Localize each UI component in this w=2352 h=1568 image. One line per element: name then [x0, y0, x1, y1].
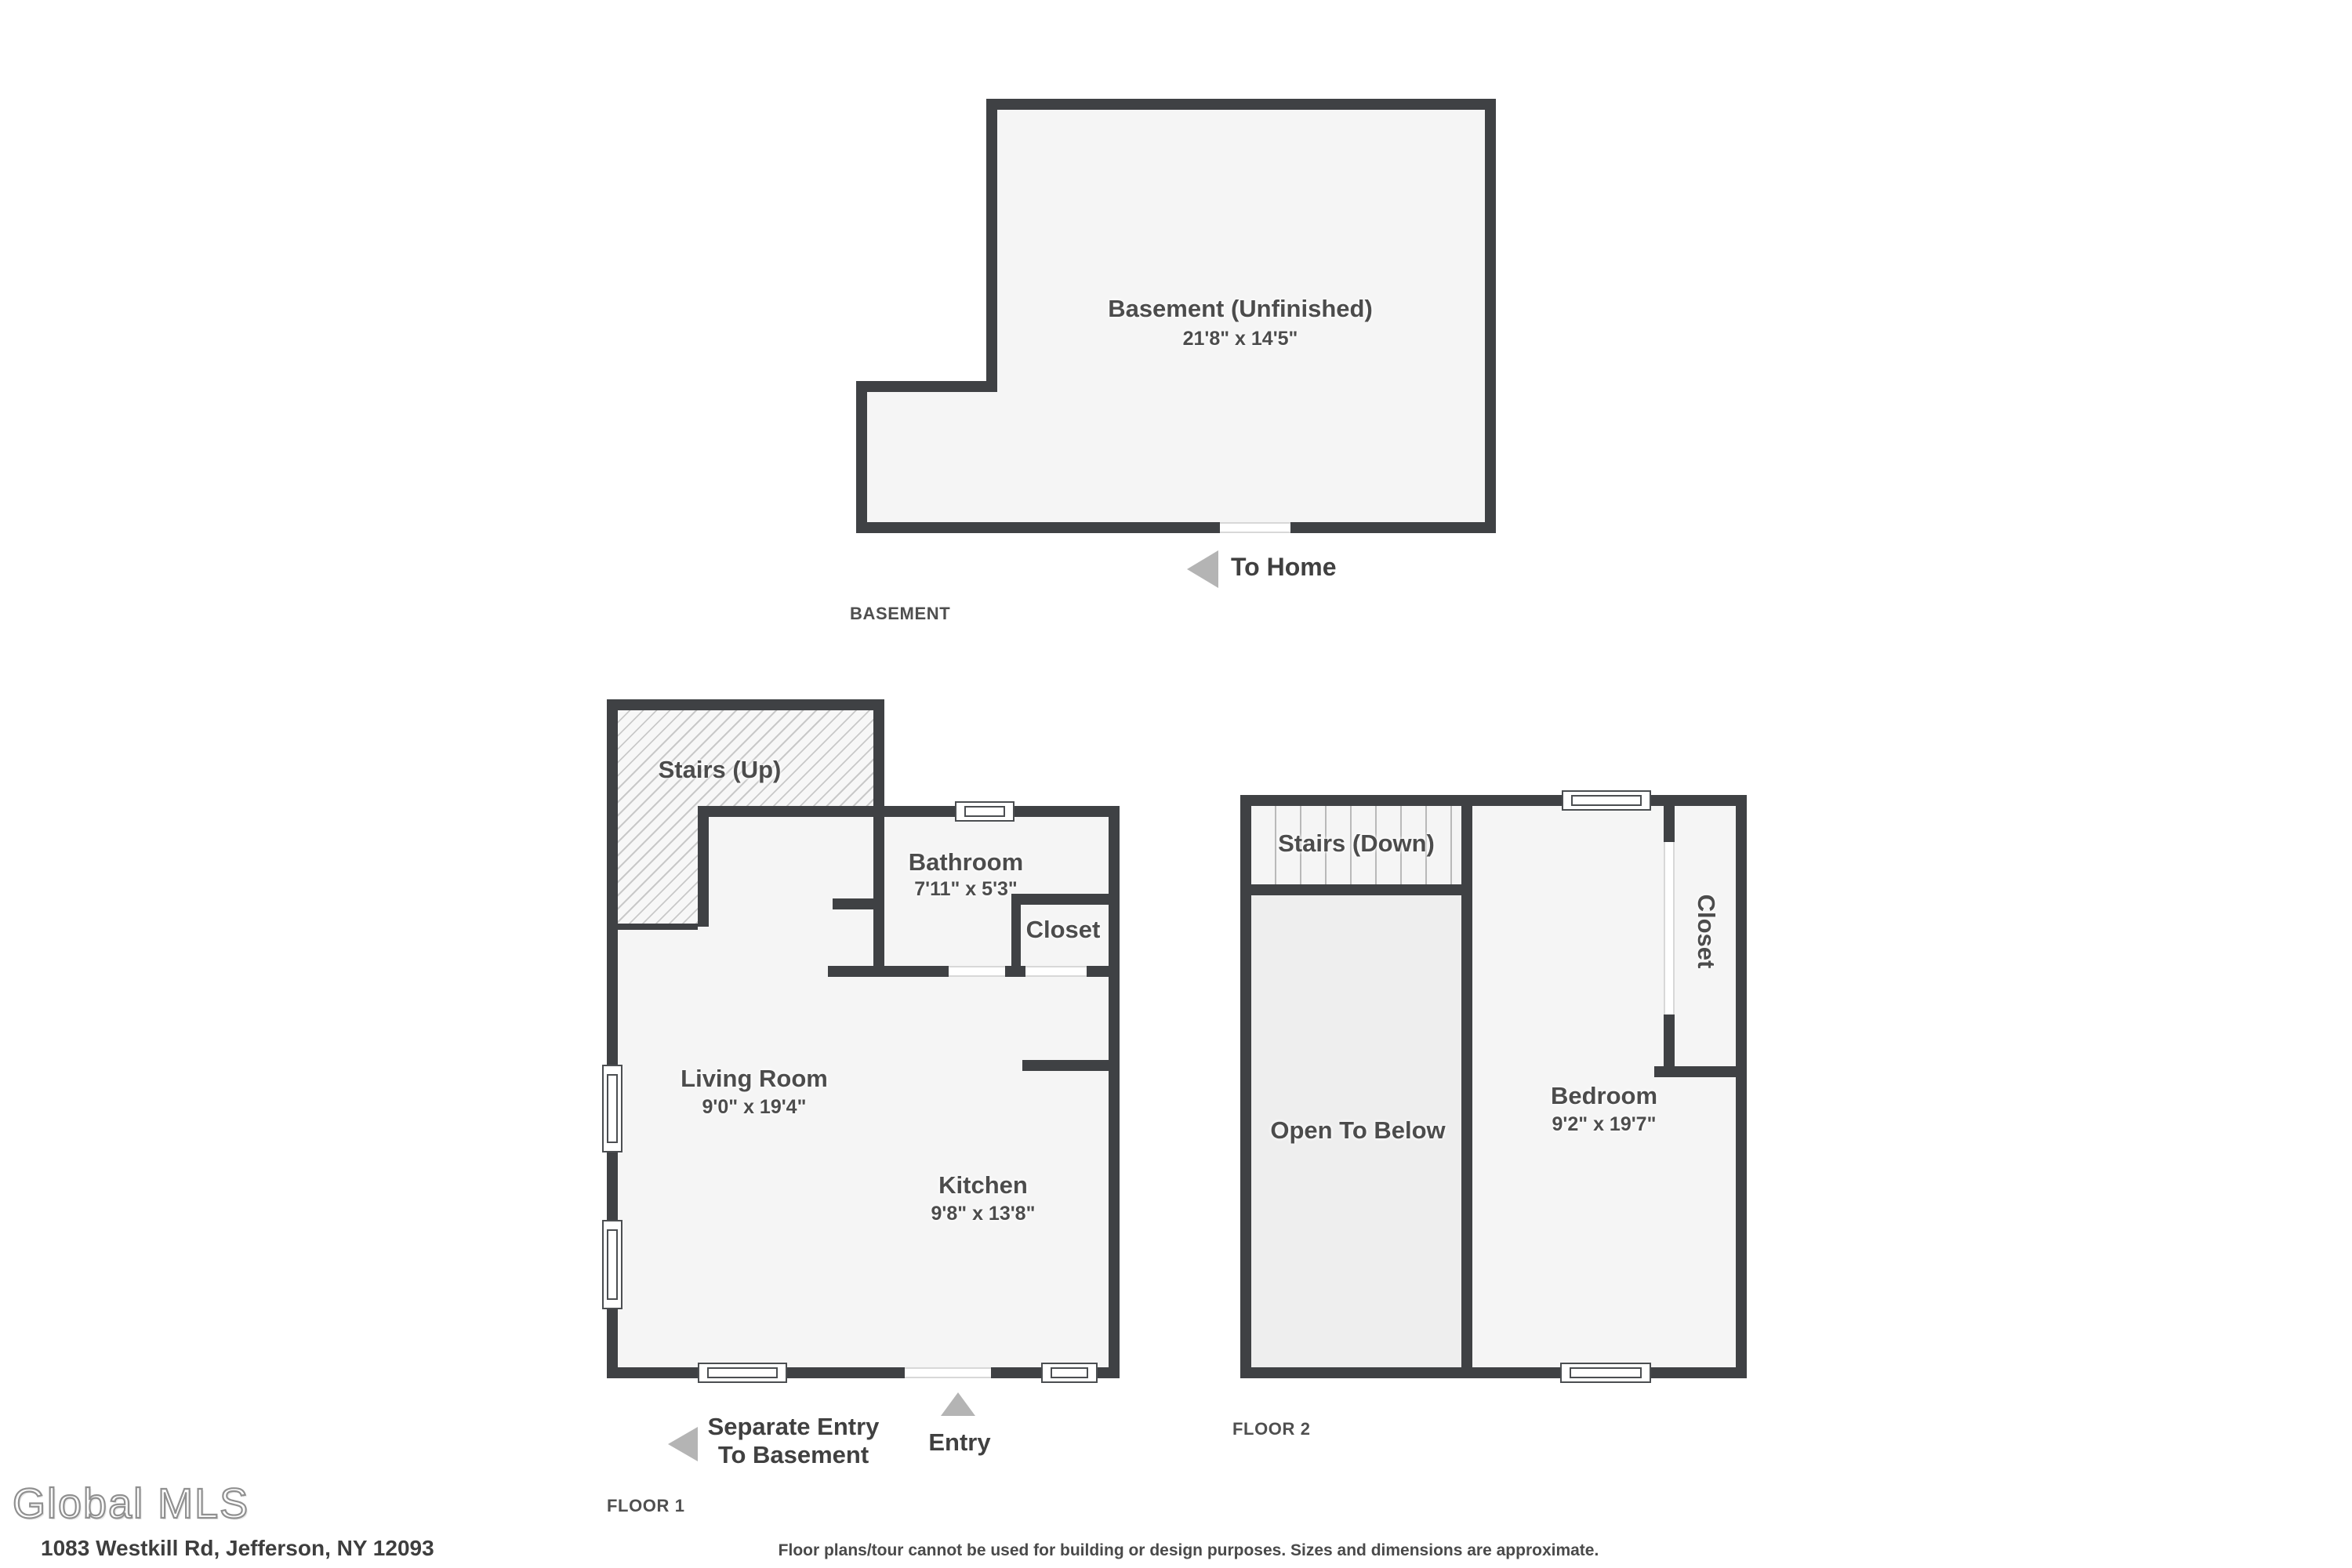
floor1-wall-stairs-right — [873, 710, 884, 817]
basement-room-title: Basement (Unfinished) — [1108, 296, 1373, 325]
floor1-living-room-title: Living Room — [681, 1066, 828, 1094]
floor1-wall-kitchen-stub — [1022, 1060, 1109, 1071]
floor1-wall-stairs-inner-vertical — [698, 817, 709, 927]
floor2-wall-top-left — [1240, 795, 1562, 806]
basement-wall-left-lower — [856, 381, 867, 533]
floor2-stairs-down-title: Stairs (Down) — [1278, 831, 1435, 859]
floor2-wall-bottom-right — [1651, 1367, 1747, 1378]
floor1-bottom-window-right — [1041, 1363, 1098, 1383]
floor1-living-room-dims: 9'0" x 19'4" — [702, 1096, 807, 1118]
separate-entry-label-line2: To Basement — [718, 1443, 869, 1471]
floor1-wall-bathroom-bottom-left — [828, 966, 949, 977]
to-home-label: To Home — [1231, 555, 1337, 583]
floor1-entry-door — [905, 1367, 991, 1378]
floor1-label: FLOOR 1 — [607, 1497, 685, 1516]
floor2-open-to-below-title: Open To Below — [1270, 1118, 1445, 1146]
floor2-bottom-window — [1560, 1363, 1651, 1383]
separate-entry-arrow-icon — [668, 1427, 698, 1461]
floor1-wall-bottom-3 — [991, 1367, 1041, 1378]
basement-door-to-home — [1220, 522, 1290, 533]
disclaimer-text: Floor plans/tour cannot be used for buil… — [779, 1541, 1599, 1560]
floor2-wall-divider — [1461, 806, 1472, 1367]
entry-label: Entry — [928, 1430, 990, 1458]
floor2-bedroom-title: Bedroom — [1551, 1083, 1657, 1112]
basement-floor-label: BASEMENT — [850, 605, 950, 624]
entry-arrow-icon — [941, 1392, 975, 1416]
floor2-closet-door — [1664, 842, 1675, 1014]
floor-plan-canvas: Basement (Unfinished) 21'8" x 14'5" To H… — [0, 0, 2352, 1568]
basement-wall-bottom-right — [1290, 522, 1496, 533]
floor1-left-window-lower — [602, 1220, 622, 1309]
floor1-bathroom-window — [955, 801, 1014, 822]
basement-wall-bottom-left — [856, 522, 1220, 533]
floor2-bedroom-dims: 9'2" x 19'7" — [1552, 1113, 1657, 1135]
basement-room-fill-notch — [867, 392, 997, 522]
floor1-bathroom-dims: 7'11" x 5'3" — [914, 878, 1018, 900]
floor1-wall-bathroom-bottom-mid — [1005, 966, 1025, 977]
floor1-wall-bathroom-left — [873, 817, 884, 966]
floor1-closet-door — [1025, 966, 1087, 977]
floor1-wall-bottom-4 — [1098, 1367, 1120, 1378]
floor1-bathroom-door — [949, 966, 1005, 977]
floor1-wall-bottom-1 — [607, 1367, 698, 1378]
global-mls-logo: Global MLS — [13, 1480, 249, 1529]
floor2-wall-closet-left-upper — [1664, 804, 1675, 842]
floor1-bottom-window-left — [698, 1363, 787, 1383]
floor1-stairs-up-title: Stairs (Up) — [659, 757, 782, 786]
floor1-wall-bathroom-bottom-right — [1087, 966, 1120, 977]
basement-wall-top — [986, 99, 1496, 110]
floor1-left-window-upper — [602, 1065, 622, 1152]
property-address: 1083 Westkill Rd, Jefferson, NY 12093 — [41, 1535, 434, 1560]
basement-wall-step — [856, 381, 997, 392]
floor2-top-window — [1562, 790, 1651, 811]
floor1-kitchen-dims: 9'8" x 13'8" — [931, 1203, 1036, 1225]
floor1-wall-bathroom-stub — [833, 898, 873, 909]
floor1-wall-stairs-column-bottom — [618, 924, 698, 930]
floor2-wall-bottom-left — [1240, 1367, 1560, 1378]
floor2-wall-right — [1736, 795, 1747, 1378]
floor1-wall-mid-horizontal-right — [1014, 806, 1120, 817]
floor2-wall-closet-bottom — [1654, 1066, 1747, 1077]
floor2-wall-stairs-bottom — [1240, 884, 1472, 895]
floor2-wall-left — [1240, 795, 1251, 1378]
floor1-wall-right — [1109, 806, 1120, 1378]
to-home-arrow-icon — [1187, 550, 1218, 588]
floor2-label: FLOOR 2 — [1232, 1421, 1311, 1439]
floor2-wall-closet-left-lower — [1664, 1014, 1675, 1066]
basement-wall-left-upper — [986, 99, 997, 392]
floor1-wall-closet-left — [1011, 903, 1021, 966]
floor1-bathroom-title: Bathroom — [909, 850, 1023, 878]
floor1-closet-title: Closet — [1026, 917, 1101, 946]
floor1-kitchen-title: Kitchen — [938, 1173, 1028, 1201]
floor1-wall-stairs-top — [607, 699, 884, 710]
basement-wall-right — [1485, 99, 1496, 533]
floor2-closet-title: Closet — [1690, 895, 1719, 969]
floor1-wall-mid-horizontal-left — [698, 806, 955, 817]
floor1-wall-closet-top — [1011, 894, 1120, 905]
basement-room-dims: 21'8" x 14'5" — [1183, 328, 1298, 350]
floor1-wall-bottom-2 — [787, 1367, 905, 1378]
separate-entry-label-line1: Separate Entry — [708, 1414, 880, 1443]
